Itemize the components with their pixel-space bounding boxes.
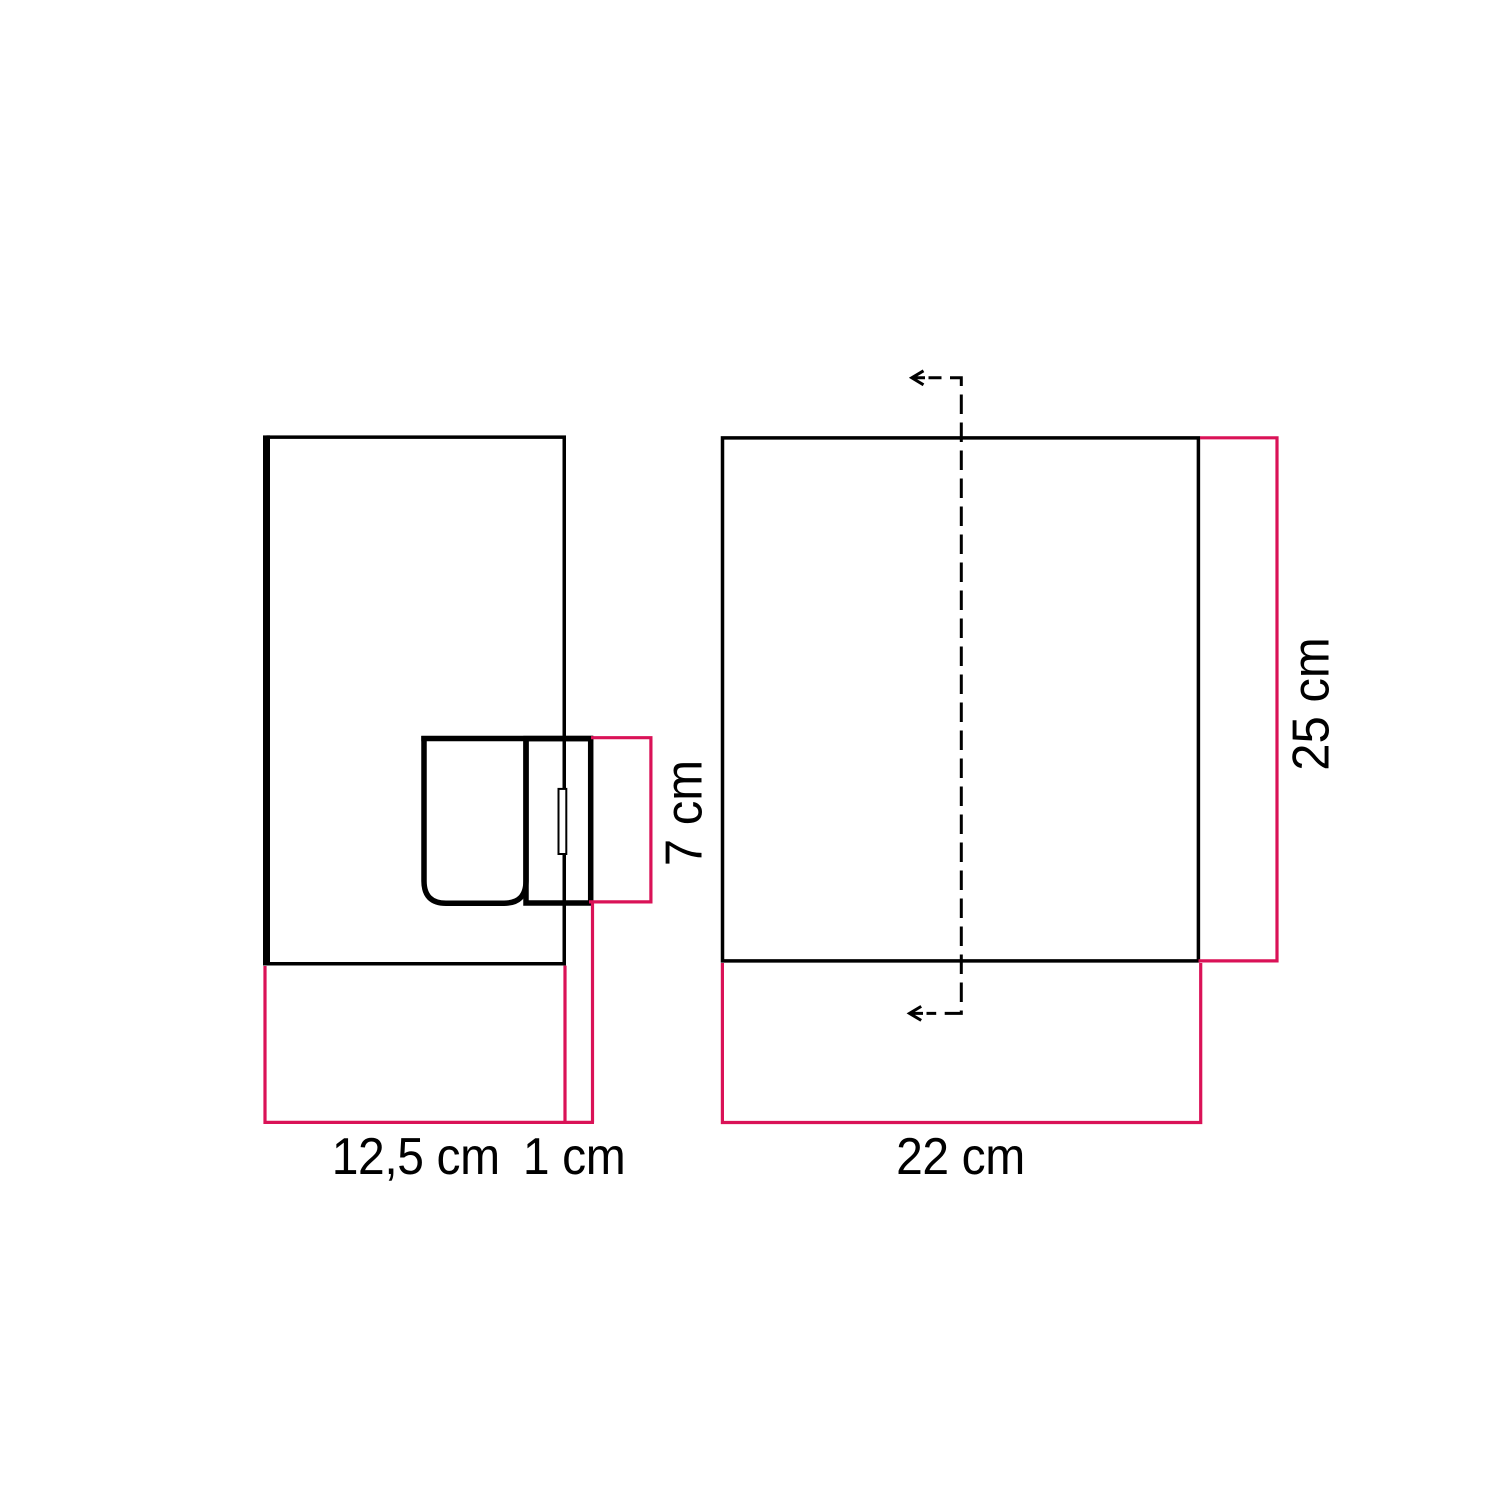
svg-text:12,5 cm: 12,5 cm xyxy=(332,1127,500,1185)
svg-text:22 cm: 22 cm xyxy=(896,1127,1025,1185)
svg-text:7 cm: 7 cm xyxy=(654,760,713,866)
svg-text:25 cm: 25 cm xyxy=(1281,637,1340,770)
svg-text:1 cm: 1 cm xyxy=(523,1127,625,1185)
